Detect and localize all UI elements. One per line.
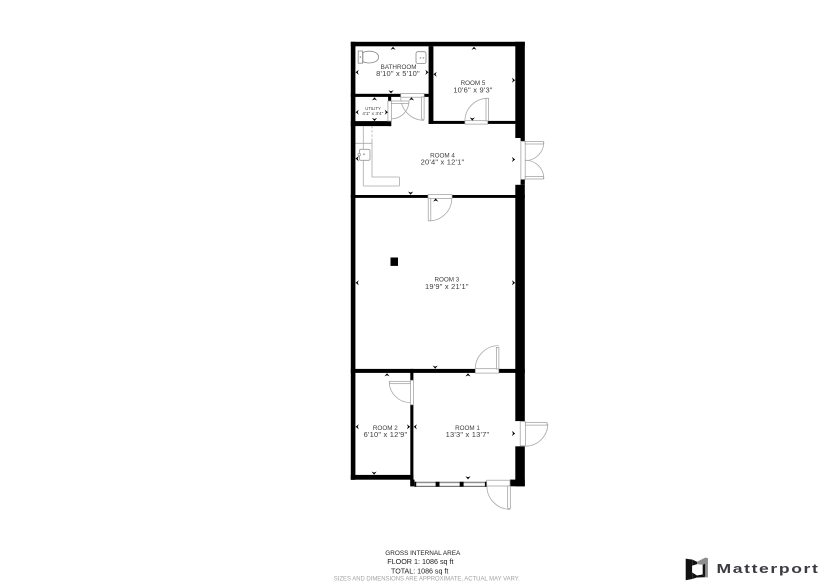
svg-text:UTILITY: UTILITY xyxy=(365,106,381,111)
svg-text:10'6" x 9'3": 10'6" x 9'3" xyxy=(453,86,492,95)
svg-text:6'10" x 12'9": 6'10" x 12'9" xyxy=(364,430,408,439)
svg-text:19'9" x 21'1": 19'9" x 21'1" xyxy=(425,282,469,291)
svg-text:GROSS INTERNAL AREA: GROSS INTERNAL AREA xyxy=(385,550,461,557)
svg-text:Matterport: Matterport xyxy=(717,562,820,576)
svg-text:13'3" x 13'7": 13'3" x 13'7" xyxy=(446,430,490,439)
svg-text:8'10" x 5'10": 8'10" x 5'10" xyxy=(376,69,420,78)
svg-text:TOTAL: 1086 sq ft: TOTAL: 1086 sq ft xyxy=(391,567,448,575)
svg-text:SIZES AND DIMENSIONS ARE APPRO: SIZES AND DIMENSIONS ARE APPROXIMATE, AC… xyxy=(334,577,520,583)
svg-text:20'4" x 12'1": 20'4" x 12'1" xyxy=(421,158,465,167)
svg-text:4'1" x 3'4": 4'1" x 3'4" xyxy=(362,111,383,117)
svg-text:FLOOR 1: 1086 sq ft: FLOOR 1: 1086 sq ft xyxy=(387,557,453,566)
